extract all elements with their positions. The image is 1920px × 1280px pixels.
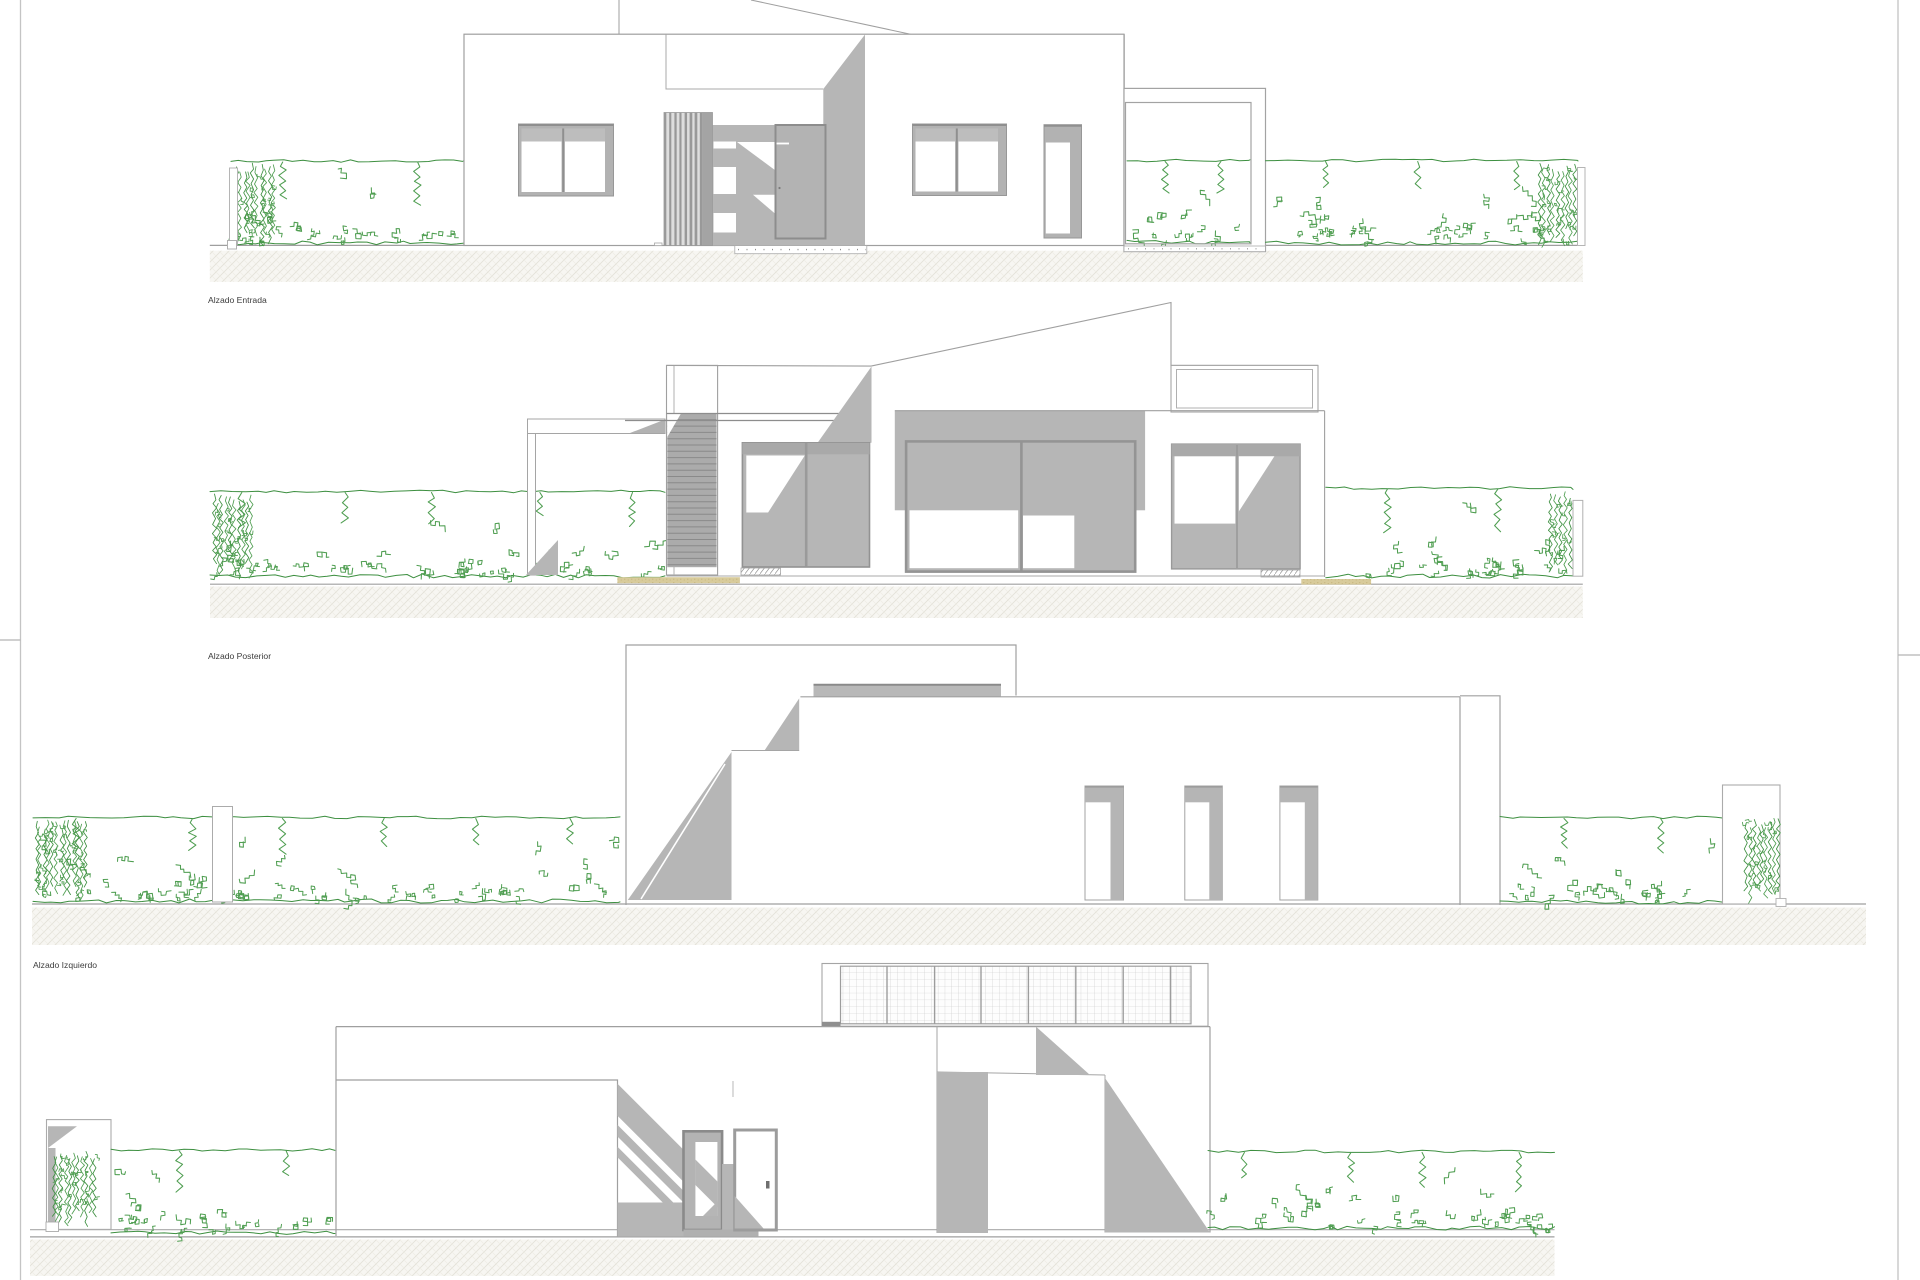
svg-text:Alzado Posterior: Alzado Posterior <box>208 651 271 661</box>
svg-text:Alzado Entrada: Alzado Entrada <box>208 295 267 305</box>
svg-text:Alzado Izquierdo: Alzado Izquierdo <box>33 960 97 970</box>
